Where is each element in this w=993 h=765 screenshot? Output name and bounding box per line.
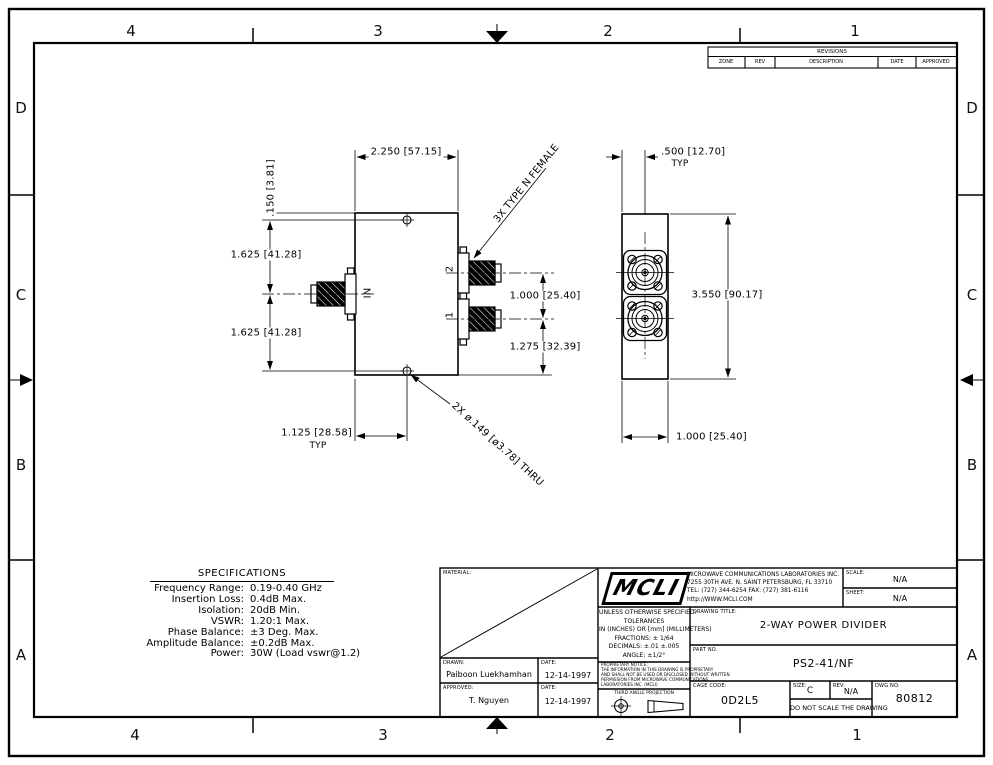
material-label: MATERIAL: xyxy=(443,570,471,576)
dwg-no: 80812 xyxy=(872,692,957,705)
drawn-name: Paiboon Luekhamhan xyxy=(440,670,538,679)
zone-top-3: 3 xyxy=(373,22,383,40)
spec-row: Insertion Loss:0.4dB Max. xyxy=(128,595,360,606)
third-angle-projection-symbol xyxy=(611,696,683,716)
dim-lower-spacing: 1.625 [41.28] xyxy=(229,328,304,339)
spec-row: Frequency Range:0.19-0.40 GHz xyxy=(128,584,360,595)
approved-name: T. Nguyen xyxy=(440,696,538,705)
mcli-logo: MCLI xyxy=(601,572,690,605)
specifications-list: Frequency Range:0.19-0.40 GHz Insertion … xyxy=(128,584,360,660)
revisions-col-date: DATE xyxy=(890,59,903,65)
dim-upper-spacing: 1.625 [41.28] xyxy=(229,250,304,261)
dim-body-width: 2.250 [57.15] xyxy=(369,147,444,158)
part-no-label: PART NO. xyxy=(693,647,718,653)
zone-left-d: D xyxy=(15,99,27,117)
approved-date: 12-14-1997 xyxy=(538,697,598,706)
drawing-title-label: DRAWING TITLE: xyxy=(693,609,737,615)
cage-code: 0D2L5 xyxy=(690,694,790,707)
zone-left-c: C xyxy=(16,286,26,304)
spec-row: VSWR:1.20:1 Max. xyxy=(128,617,360,628)
dim-hole-x: 1.125 [28.58] xyxy=(281,428,352,439)
label-port-1: 1 xyxy=(445,312,456,319)
zone-right-d: D xyxy=(966,99,978,117)
rev-value: N/A xyxy=(830,687,872,696)
dim-edge-offset: .500 [12.70] xyxy=(661,147,725,158)
dim-hole-x-typ: TYP xyxy=(309,441,326,451)
label-port-in: IN xyxy=(363,288,374,299)
part-no: PS2-41/NF xyxy=(690,657,957,670)
sheet-value: N/A xyxy=(843,594,957,603)
dim-port1-bottom: 1.275 [32.39] xyxy=(508,342,583,353)
size-value: C xyxy=(790,686,830,696)
revisions-col-description: DESCRIPTION xyxy=(809,59,843,65)
zone-right-c: C xyxy=(967,286,977,304)
drawn-date: 12-14-1997 xyxy=(538,671,598,680)
zone-bottom-2: 2 xyxy=(605,726,615,744)
spec-row: Phase Balance:±3 Deg. Max. xyxy=(128,628,360,639)
zone-left-a: A xyxy=(16,646,26,664)
drawn-label: DRAWN: xyxy=(443,660,465,666)
drawing-sheet: 4 3 2 1 4 3 2 1 D C B A D C B A REVISION… xyxy=(0,0,993,765)
revisions-col-approved: APPROVED xyxy=(922,59,949,65)
zone-top-1: 1 xyxy=(850,22,860,40)
spec-row: Isolation:20dB Min. xyxy=(128,606,360,617)
dwg-no-label: DWG NO. xyxy=(875,683,900,689)
scale-value: N/A xyxy=(843,575,957,584)
zone-top-4: 4 xyxy=(126,22,136,40)
cage-code-label: CAGE CODE: xyxy=(693,683,727,689)
spec-row: Power:30W (Load vswr@1.2) xyxy=(128,649,360,660)
dim-port-spacing: 1.000 [25.40] xyxy=(508,291,583,302)
revisions-col-rev: REV xyxy=(755,59,765,65)
zone-bottom-3: 3 xyxy=(378,726,388,744)
tolerances-block: UNLESS OTHERWISE SPECIFIED: TOLERANCES I… xyxy=(599,609,689,661)
zone-bottom-4: 4 xyxy=(130,726,140,744)
revisions-col-zone: ZONE xyxy=(719,59,733,65)
zone-left-b: B xyxy=(16,456,26,474)
drawing-title: 2-WAY POWER DIVIDER xyxy=(690,620,957,631)
no-scale-note: DO NOT SCALE THE DRAWING xyxy=(790,704,872,712)
approved-date-label: DATE: xyxy=(541,685,557,691)
dim-body-height: 3.550 [90.17] xyxy=(690,290,765,301)
dim-side-width: 1.000 [25.40] xyxy=(676,432,747,443)
approved-label: APPROVED: xyxy=(443,685,474,691)
zone-right-b: B xyxy=(967,456,977,474)
dim-edge-typ: TYP xyxy=(671,159,688,169)
zone-right-a: A xyxy=(967,646,977,664)
zone-bottom-1: 1 xyxy=(852,726,862,744)
zone-top-2: 2 xyxy=(603,22,613,40)
projection-label: THIRD ANGLE PROJECTION xyxy=(598,691,690,696)
revisions-title: REVISIONS xyxy=(817,49,847,55)
dim-hole-offset: .150 [3.81] xyxy=(266,157,277,219)
drawn-date-label: DATE: xyxy=(541,660,557,666)
company-address: MICROWAVE COMMUNICATIONS LABORATORIES IN… xyxy=(687,571,839,604)
specifications-title: SPECIFICATIONS xyxy=(150,568,334,582)
side-view xyxy=(616,214,674,379)
label-port-2: 2 xyxy=(445,266,456,273)
